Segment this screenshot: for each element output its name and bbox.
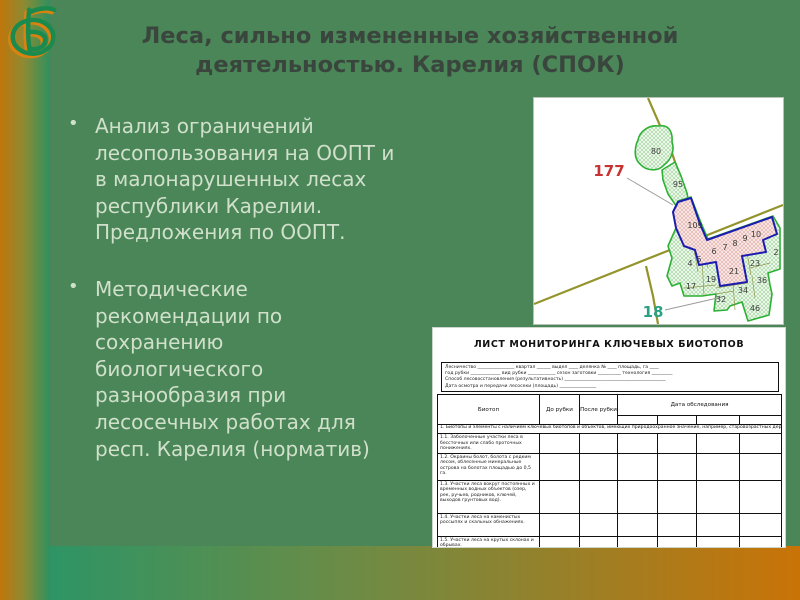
plot-number-label: 109 [687, 221, 702, 230]
plot-number-label: 7 [722, 243, 727, 252]
empty-cell [658, 434, 697, 454]
plot-number-label: 21 [729, 267, 739, 276]
empty-cell [580, 536, 618, 548]
map-reference-label: 18 [643, 303, 664, 321]
empty-cell [618, 480, 658, 513]
page-title: Леса, сильно измененные хозяйственной де… [120, 22, 700, 79]
biotope-description-cell: 1.4. Участки леса на каменистых россыпях… [438, 513, 540, 536]
empty-cell [658, 453, 697, 480]
empty-cell [658, 536, 697, 548]
bullet-text: Методические рекомендации по сохранению … [95, 277, 370, 461]
biotope-description-cell: 1.5. Участки леса на крутых склонах и об… [438, 536, 540, 548]
plot-number-label: 10 [751, 230, 761, 239]
empty-cell [540, 434, 580, 454]
plot-number-label: 19 [706, 275, 716, 284]
table-row: 1.2. Окраины болот, болота с редким лесо… [438, 453, 782, 480]
table-row: 1.1. Заболоченные участки леса в бессточ… [438, 434, 782, 454]
plot-number-label: 5 [696, 255, 701, 264]
empty-cell [697, 480, 740, 513]
biotope-table: Биотоп До рубки После рубки Дата обследо… [437, 394, 782, 548]
empty-cell [697, 513, 740, 536]
table-section-header: 1. Биотопы и элементы с наличием ключевы… [438, 425, 782, 434]
empty-cell [580, 513, 618, 536]
empty-cell [618, 536, 658, 548]
empty-cell [618, 434, 658, 454]
bullet-item: • Анализ ограничений лесопользования на … [62, 113, 395, 246]
plot-number-label: 2 [773, 248, 778, 257]
plot-number-label: 6 [711, 247, 716, 256]
col-header-after: После рубки [580, 395, 618, 425]
plot-number-label: 95 [673, 180, 683, 189]
biotope-table-body: 1. Биотопы и элементы с наличием ключевы… [438, 425, 782, 549]
bullet-icon: • [68, 112, 79, 136]
empty-cell [618, 513, 658, 536]
date-subcell [697, 416, 740, 425]
empty-cell [580, 453, 618, 480]
plot-number-label: 80 [651, 147, 661, 156]
plot-number-label: 34 [738, 286, 748, 295]
presentation-slide: Леса, сильно измененные хозяйственной де… [0, 0, 800, 600]
form-field-line: Дата осмотра и передачи лесосеки (площад… [445, 384, 775, 390]
spok-logo-icon [3, 2, 61, 62]
bullet-item: • Методические рекомендации по сохранени… [62, 276, 395, 462]
empty-cell [540, 536, 580, 548]
plot-number-label: 23 [750, 259, 760, 268]
plot-number-label: 46 [750, 304, 760, 313]
empty-cell [697, 434, 740, 454]
plot-number-label: 4 [687, 259, 692, 268]
plot-number-label: 32 [716, 295, 726, 304]
monitoring-form-figure: ЛИСТ МОНИТОРИНГА КЛЮЧЕВЫХ БИОТОПОВ Лесни… [432, 327, 786, 548]
biotope-description-cell: 1.3. Участки леса вокруг постоянных и вр… [438, 480, 540, 513]
left-gradient-strip [0, 0, 50, 600]
empty-cell [740, 480, 782, 513]
empty-cell [658, 480, 697, 513]
empty-cell [580, 480, 618, 513]
plot-number-label: 9 [742, 234, 747, 243]
monitoring-form-title: ЛИСТ МОНИТОРИНГА КЛЮЧЕВЫХ БИОТОПОВ [433, 339, 785, 350]
bullet-text: Анализ ограничений лесопользования на ОО… [95, 114, 394, 244]
biotope-description-cell: 1.1. Заболоченные участки леса в бессточ… [438, 434, 540, 454]
form-fields-box: Лесничество ________________ квартал ___… [441, 362, 779, 392]
empty-cell [540, 453, 580, 480]
forest-map-figure: 1771880951094567891017192123232343646 [533, 97, 784, 325]
date-subcell [658, 416, 697, 425]
table-row: 1.3. Участки леса вокруг постоянных и вр… [438, 480, 782, 513]
table-row: 1.5. Участки леса на крутых склонах и об… [438, 536, 782, 548]
plot-number-label: 8 [732, 239, 737, 248]
col-header-date: Дата обследования [618, 395, 782, 416]
empty-cell [697, 453, 740, 480]
biotope-description-cell: 1.2. Окраины болот, болота с редким лесо… [438, 453, 540, 480]
date-subcell [618, 416, 658, 425]
bullet-list: • Анализ ограничений лесопользования на … [62, 113, 398, 492]
empty-cell [618, 453, 658, 480]
empty-cell [697, 536, 740, 548]
col-header-biotope: Биотоп [438, 395, 540, 425]
bottom-gradient-strip [50, 546, 800, 600]
table-row: 1.4. Участки леса на каменистых россыпях… [438, 513, 782, 536]
empty-cell [740, 513, 782, 536]
map-reference-label: 177 [593, 162, 624, 180]
plot-number-label: 17 [686, 282, 696, 291]
empty-cell [740, 453, 782, 480]
empty-cell [740, 536, 782, 548]
bullet-icon: • [68, 275, 79, 299]
empty-cell [740, 434, 782, 454]
date-subcell [740, 416, 782, 425]
empty-cell [540, 480, 580, 513]
empty-cell [658, 513, 697, 536]
empty-cell [540, 513, 580, 536]
col-header-before: До рубки [540, 395, 580, 425]
empty-cell [580, 434, 618, 454]
plot-number-label: 36 [757, 276, 767, 285]
